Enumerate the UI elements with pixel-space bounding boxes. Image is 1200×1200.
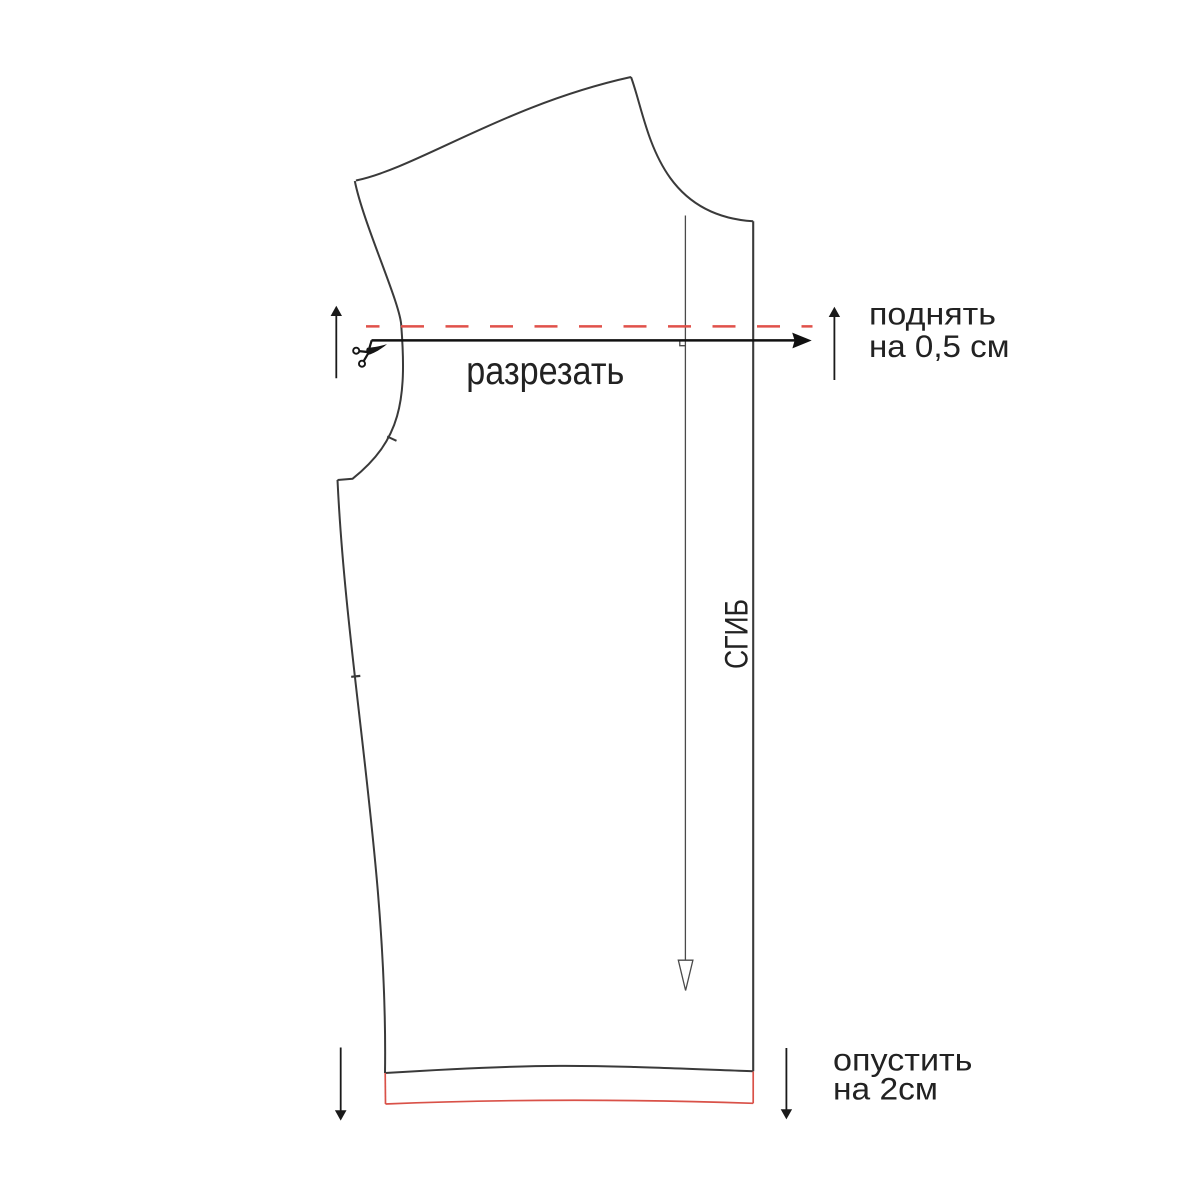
svg-text:разрезать: разрезать xyxy=(466,350,624,393)
svg-text:поднять: поднять xyxy=(869,295,996,331)
svg-text:на 2см: на 2см xyxy=(833,1071,938,1107)
svg-text:СГИБ: СГИБ xyxy=(718,599,755,669)
svg-text:на 0,5 см: на 0,5 см xyxy=(869,328,1010,364)
